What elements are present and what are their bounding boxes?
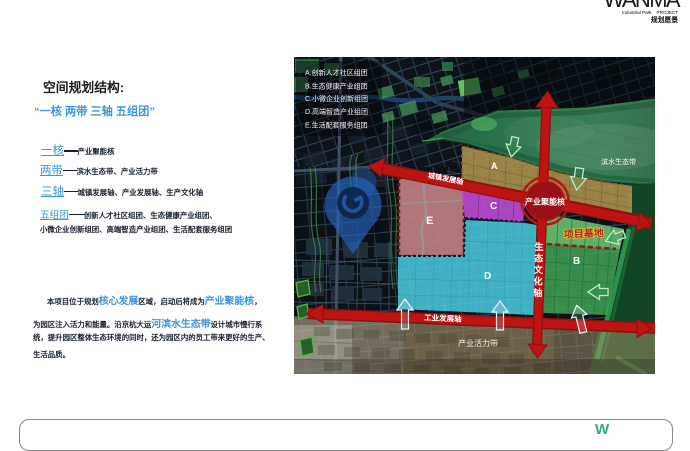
svg-text:D: D xyxy=(484,271,491,282)
svg-text:A.创新人才社区组团: A.创新人才社区组团 xyxy=(305,68,368,77)
svg-text:产业聚能核: 产业聚能核 xyxy=(525,197,565,207)
svg-text:生: 生 xyxy=(534,241,543,252)
svg-text:C: C xyxy=(490,201,497,212)
svg-text:态: 态 xyxy=(534,253,543,264)
svg-text:E: E xyxy=(426,215,433,227)
svg-text:轴: 轴 xyxy=(533,287,542,298)
svg-text:A: A xyxy=(491,161,498,171)
svg-text:滨水生态带: 滨水生态带 xyxy=(601,157,636,166)
svg-text:B: B xyxy=(573,256,580,267)
svg-text:化: 化 xyxy=(534,276,543,287)
svg-text:B.生态健康产业组团: B.生态健康产业组团 xyxy=(305,82,368,91)
svg-text:C.小微企业创新组团: C.小微企业创新组团 xyxy=(305,94,368,103)
svg-text:文: 文 xyxy=(533,264,544,275)
svg-text:产业活力带: 产业活力带 xyxy=(458,338,498,348)
svg-text:工业发展轴: 工业发展轴 xyxy=(424,312,462,324)
svg-text:D.高端智造产业组团: D.高端智造产业组团 xyxy=(305,107,368,116)
svg-text:E.生活配套服务组团: E.生活配套服务组团 xyxy=(305,121,368,130)
